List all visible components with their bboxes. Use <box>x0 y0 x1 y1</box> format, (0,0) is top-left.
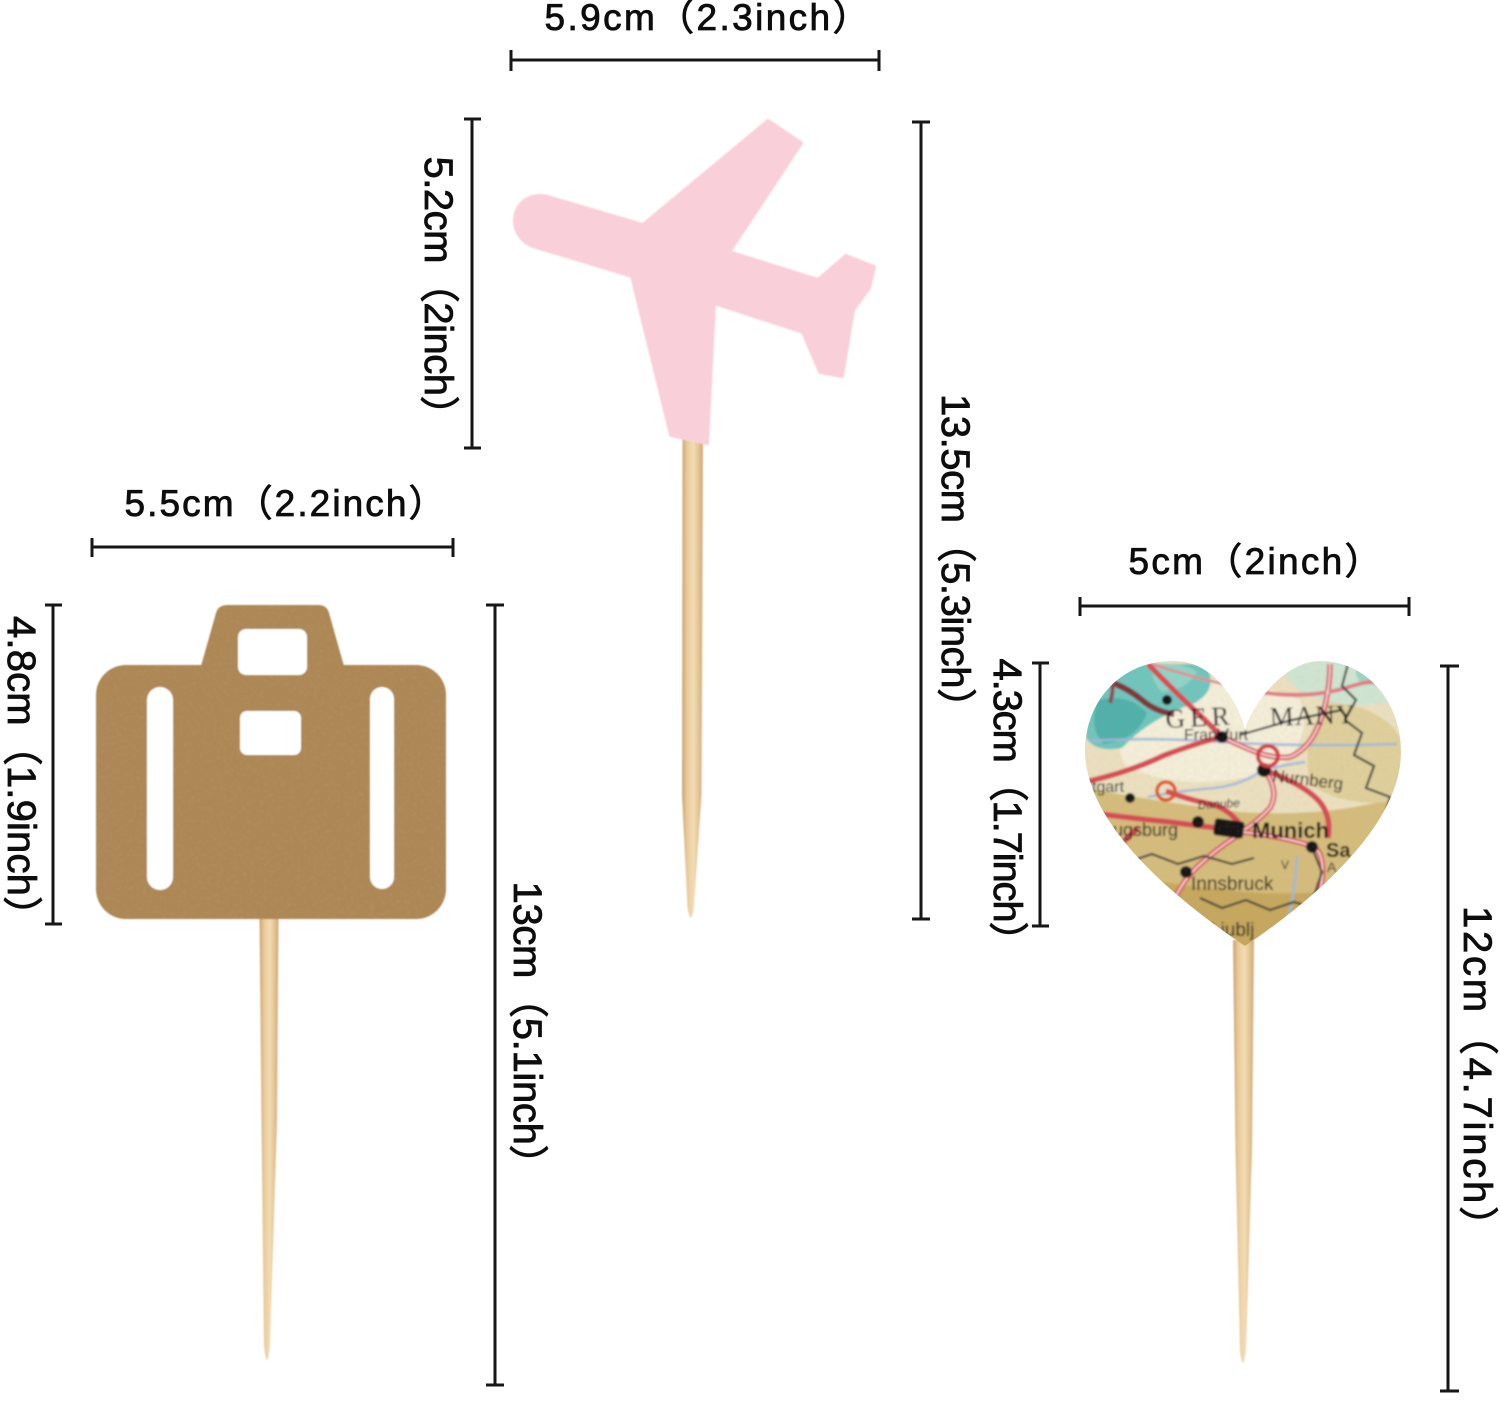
svg-text:Danube: Danube <box>1197 796 1240 812</box>
svg-text:5.9cm（2.3inch）: 5.9cm（2.3inch） <box>545 0 870 38</box>
svg-text:13cm（5.1inch）: 13cm（5.1inch） <box>505 882 549 1185</box>
svg-text:Innsbruck: Innsbruck <box>1191 874 1274 895</box>
svg-text:Ljublj: Ljublj <box>1210 920 1254 941</box>
svg-text:4.3cm（1.7inch）: 4.3cm（1.7inch） <box>985 659 1029 962</box>
svg-text:5.5cm（2.2inch）: 5.5cm（2.2inch） <box>125 483 446 524</box>
svg-text:Munich: Munich <box>1252 818 1329 843</box>
svg-text:12cm（4.7inch）: 12cm（4.7inch） <box>1455 906 1499 1246</box>
svg-text:4.8cm（1.9inch）: 4.8cm（1.9inch） <box>0 616 43 936</box>
svg-text:5.2cm（2inch）: 5.2cm（2inch） <box>416 157 460 436</box>
svg-text:ugsburg: ugsburg <box>1113 820 1178 840</box>
svg-text:MANY: MANY <box>1269 699 1357 732</box>
svg-text:V: V <box>1281 858 1289 872</box>
svg-text:tgart: tgart <box>1092 779 1125 796</box>
svg-text:5cm（2inch）: 5cm（2inch） <box>1129 541 1382 582</box>
svg-text:A: A <box>1327 859 1337 875</box>
svg-text:Frankfurt: Frankfurt <box>1184 727 1249 744</box>
svg-text:13.5cm（5.3inch）: 13.5cm（5.3inch） <box>933 394 977 728</box>
